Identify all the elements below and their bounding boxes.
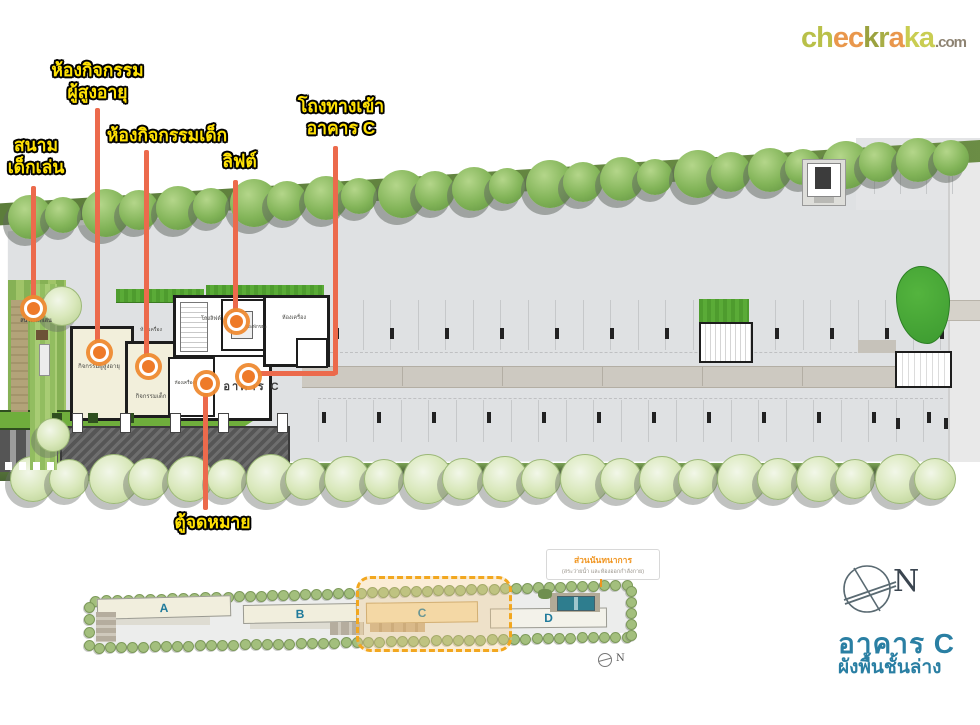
- minimap-parking-bits: [96, 612, 116, 642]
- tree-icon: [262, 639, 273, 650]
- tree-icon: [94, 643, 105, 654]
- walkway-joint: [702, 366, 703, 386]
- annotation-line: ผู้สูงอายุ: [45, 82, 150, 104]
- tree-icon: [267, 590, 278, 601]
- stall-line: [538, 400, 539, 442]
- annotation-mailbox: ตู้จดหมาย: [165, 512, 260, 534]
- deck-pillar: [120, 413, 131, 433]
- tree-icon: [195, 640, 206, 651]
- compass-n-label: N: [893, 564, 919, 599]
- stall-line: [703, 400, 704, 442]
- tree-icon: [599, 632, 610, 643]
- tree-icon: [307, 638, 318, 649]
- tree-icon: [183, 641, 194, 652]
- minimap-pool: [557, 596, 595, 611]
- annotation-line: อาคาร C: [290, 118, 392, 140]
- tree-icon: [193, 188, 229, 224]
- marker-lift: [227, 312, 246, 331]
- walkway-joint: [502, 366, 503, 386]
- column-tick: [817, 412, 821, 423]
- annotation-lift: ลิฟต์: [212, 151, 267, 173]
- recreation-connector: [600, 579, 602, 587]
- marker-playground: [24, 299, 43, 318]
- column-tick: [896, 418, 900, 429]
- tree-icon: [284, 639, 295, 650]
- stall-line: [665, 300, 666, 350]
- column-tick: [445, 328, 449, 339]
- playground-sandpit: [11, 300, 28, 412]
- column-tick: [500, 328, 504, 339]
- stall-line: [610, 300, 611, 350]
- leader-entrance-vertical: [333, 146, 338, 375]
- tree-icon: [217, 640, 228, 651]
- column-tick: [707, 412, 711, 423]
- stall-line: [786, 400, 787, 442]
- central-walkway: [302, 366, 906, 388]
- tree-icon: [442, 458, 484, 500]
- tree-icon: [36, 418, 70, 452]
- tree-icon: [757, 458, 799, 500]
- shrine-structure: [802, 159, 846, 206]
- stall-line: [868, 400, 869, 442]
- tree-icon: [240, 639, 251, 650]
- stall-line: [363, 300, 364, 350]
- tree-icon: [341, 637, 352, 648]
- annotation-elderly-room: ห้องกิจกรรม ผู้สูงอายุ: [45, 60, 150, 104]
- tree-icon: [364, 459, 404, 499]
- stall-line: [813, 400, 814, 442]
- tree-icon: [84, 627, 95, 638]
- stall-line: [803, 300, 804, 350]
- tree-icon: [520, 634, 531, 645]
- minimap-highlight-c: [356, 576, 512, 652]
- annotation-line: โถงทางเข้า: [290, 96, 392, 118]
- column-tick: [944, 418, 948, 429]
- tree-icon: [311, 589, 322, 600]
- marker-mailbox: [197, 374, 216, 393]
- stall-line: [428, 400, 429, 442]
- walkway-joint: [802, 366, 803, 386]
- playground-label: สนามเด็กเล่น: [10, 318, 62, 324]
- stall-line: [621, 400, 622, 442]
- stall-line: [418, 300, 419, 350]
- column-tick: [927, 412, 931, 423]
- shrine-step: [814, 197, 834, 203]
- tree-icon: [678, 459, 718, 499]
- column-tick: [885, 328, 889, 339]
- tree-icon: [84, 602, 95, 613]
- stall-line: [473, 300, 474, 350]
- column-tick: [555, 328, 559, 339]
- tree-icon: [626, 630, 637, 641]
- column-tick: [652, 412, 656, 423]
- marker-entrance: [239, 367, 258, 386]
- playground-equipment: [36, 330, 48, 340]
- leader-kids: [144, 150, 149, 360]
- stall-line: [676, 400, 677, 442]
- tree-icon: [532, 633, 543, 644]
- stall-line: [693, 300, 694, 350]
- deck-pillar: [72, 413, 83, 433]
- minimap-building-b: B: [243, 603, 357, 624]
- shrine-emblem-icon: [815, 167, 831, 189]
- tree-icon: [285, 458, 327, 500]
- tree-icon: [127, 642, 138, 653]
- deck-pillar: [170, 413, 181, 433]
- tree-icon: [565, 633, 576, 644]
- recreation-title: ส่วนนันทนาการ: [547, 553, 659, 567]
- column-tick: [390, 328, 394, 339]
- minimap-green-patch: [538, 589, 552, 599]
- stall-line: [346, 400, 347, 442]
- tree-icon: [256, 591, 267, 602]
- tree-icon: [206, 640, 217, 651]
- mid-stairwell: [699, 322, 753, 363]
- tree-icon: [296, 638, 307, 649]
- stall-line: [445, 300, 446, 350]
- stall-line: [583, 300, 584, 350]
- right-stairwell: [895, 351, 952, 388]
- tree-icon: [588, 581, 599, 592]
- tree-icon: [116, 642, 127, 653]
- stall-line: [648, 400, 649, 442]
- room-label-machine: ห้องเครื่อง: [134, 328, 168, 334]
- annotation-line: ห้องกิจกรรม: [45, 60, 150, 82]
- tree-icon: [626, 597, 637, 608]
- tree-icon: [273, 639, 284, 650]
- stall-line: [483, 400, 484, 442]
- tree-icon: [577, 632, 588, 643]
- annotation-playground: สนาม เด็กเล่น: [2, 135, 70, 179]
- tree-icon: [933, 140, 969, 176]
- tree-icon: [626, 586, 637, 597]
- compass-icon: [840, 560, 900, 620]
- column-tick: [487, 412, 491, 423]
- tree-icon: [45, 197, 81, 233]
- marker-kids: [139, 357, 158, 376]
- column-tick: [542, 412, 546, 423]
- recreation-callout: ส่วนนันทนาการ (สระว่ายน้ำ และห้องออกกำลั…: [546, 549, 660, 580]
- stall-line: [373, 400, 374, 442]
- room-label-kids: กิจกรรมเด็ก: [124, 394, 178, 401]
- column-tick: [665, 328, 669, 339]
- stall-line: [841, 400, 842, 442]
- stall-line: [528, 300, 529, 350]
- stall-line: [830, 300, 831, 350]
- tree-icon: [245, 591, 256, 602]
- stall-line: [566, 400, 567, 442]
- column-tick: [872, 412, 876, 423]
- column-tick: [775, 328, 779, 339]
- tree-icon: [554, 633, 565, 644]
- tree-icon: [415, 171, 455, 211]
- right-walk-step: [858, 340, 896, 353]
- room-label-waste: ห้องพักขยะ: [244, 324, 268, 329]
- room-label-machine-right: ห้องเครื่อง: [276, 315, 312, 321]
- walkway-joint: [402, 366, 403, 386]
- column-tick: [322, 412, 326, 423]
- tree-icon: [711, 152, 751, 192]
- room-label-lift-hall: โถงลิฟต์: [196, 316, 226, 322]
- tree-icon: [105, 642, 116, 653]
- tree-icon: [626, 608, 637, 619]
- annotation-kids-room: ห้องกิจกรรมเด็ก: [103, 125, 231, 147]
- tree-icon: [600, 458, 642, 500]
- tree-icon: [84, 614, 95, 625]
- column-tick: [610, 328, 614, 339]
- tree-icon: [84, 640, 95, 651]
- tree-icon: [172, 641, 183, 652]
- tree-icon: [341, 178, 377, 214]
- column-tick: [597, 412, 601, 423]
- minimap-building-b-label: B: [296, 606, 305, 620]
- tree-icon: [318, 638, 329, 649]
- minimap-compass-icon: [597, 652, 617, 668]
- minimap-compass-n: N: [616, 653, 625, 664]
- column-tick: [432, 412, 436, 423]
- tree-icon: [522, 583, 533, 594]
- minimap-building-d-label: D: [544, 611, 553, 625]
- tree-icon: [228, 640, 239, 651]
- column-tick: [762, 412, 766, 423]
- tree-icon: [322, 589, 333, 600]
- tree-icon: [289, 590, 300, 601]
- leader-playground: [31, 186, 36, 302]
- lane-dash-top: [320, 352, 942, 353]
- tree-icon: [555, 582, 566, 593]
- tree-icon: [251, 639, 262, 650]
- tree-icon: [138, 642, 149, 653]
- stall-line: [731, 400, 732, 442]
- tree-icon: [577, 581, 588, 592]
- tree-icon: [588, 632, 599, 643]
- stall-line: [638, 300, 639, 350]
- stall-line: [318, 400, 319, 442]
- tree-icon: [626, 619, 637, 630]
- annotation-line: เด็กเล่น: [2, 157, 70, 179]
- deck-pillar: [277, 413, 288, 433]
- stall-line: [390, 300, 391, 350]
- lane-dash-bottom: [318, 398, 943, 399]
- tree-icon: [278, 590, 289, 601]
- column-tick: [830, 328, 834, 339]
- stall-line: [923, 400, 924, 442]
- tree-icon: [563, 162, 603, 202]
- small-room-block: [296, 338, 328, 368]
- tree-icon: [511, 583, 522, 594]
- stall-line: [456, 400, 457, 442]
- page-subtitle: ผังพื้นชั้นล่าง: [838, 652, 941, 682]
- tree-icon: [543, 633, 554, 644]
- tree-icon: [207, 459, 247, 499]
- tree-icon: [150, 641, 161, 652]
- stair-hatch: [180, 302, 208, 352]
- tree-icon: [521, 459, 561, 499]
- stall-line: [775, 300, 776, 350]
- minimap-building-a-label: A: [159, 600, 168, 614]
- tree-icon: [914, 458, 956, 500]
- annotation-entrance: โถงทางเข้า อาคาร C: [290, 96, 392, 140]
- tree-icon: [267, 181, 307, 221]
- leader-lift: [233, 180, 238, 315]
- minimap-building-a: A: [97, 595, 232, 620]
- stall-line: [758, 400, 759, 442]
- deck-pillar: [218, 413, 229, 433]
- stall-line: [500, 300, 501, 350]
- tree-icon: [329, 638, 340, 649]
- room-label-elderly: กิจกรรมผู้สูงอายุ: [68, 364, 130, 371]
- stall-line: [401, 400, 402, 442]
- walkway-joint: [602, 366, 603, 386]
- column-tick: [377, 412, 381, 423]
- tree-icon: [835, 459, 875, 499]
- marker-elderly: [90, 343, 109, 362]
- leader-elderly: [95, 108, 100, 346]
- stall-line: [593, 400, 594, 442]
- tree-icon: [637, 159, 673, 195]
- tree-icon: [128, 458, 170, 500]
- stall-line: [511, 400, 512, 442]
- tree-icon: [161, 641, 172, 652]
- mid-stair-structure: [699, 299, 749, 322]
- tree-icon: [234, 591, 245, 602]
- leader-mailbox: [203, 392, 208, 510]
- band-planter: [88, 413, 98, 423]
- annotation-line: สนาม: [2, 135, 70, 157]
- leader-entrance-horizontal: [254, 371, 336, 376]
- page-canvas: checkraka.com: [0, 0, 980, 725]
- playground-slide: [39, 344, 50, 376]
- stall-line: [555, 300, 556, 350]
- recreation-subtitle: (สระว่ายน้ำ และห้องออกกำลังกาย): [547, 568, 659, 576]
- crosswalk-icon: [5, 462, 55, 470]
- tree-icon: [610, 632, 621, 643]
